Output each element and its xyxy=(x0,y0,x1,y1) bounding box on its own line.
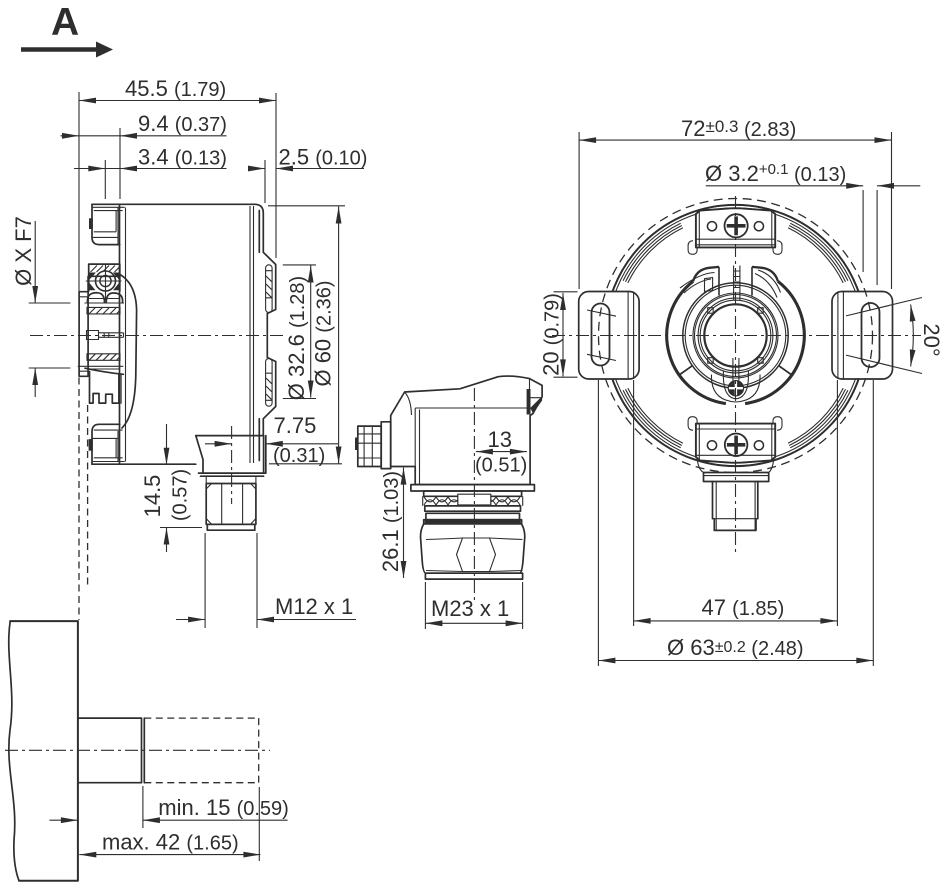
svg-text:7.75: 7.75 xyxy=(274,413,317,438)
svg-text:3.4 (0.13): 3.4 (0.13) xyxy=(138,145,227,170)
svg-text:M12 x 1: M12 x 1 xyxy=(275,594,353,619)
svg-text:(0.51): (0.51) xyxy=(475,455,527,477)
svg-text:26.1 (1.03): 26.1 (1.03) xyxy=(378,471,403,572)
svg-text:47 (1.85): 47 (1.85) xyxy=(702,595,785,620)
svg-text:M23 x 1: M23 x 1 xyxy=(431,596,509,621)
svg-text:Ø 63±0.2 (2.48): Ø 63±0.2 (2.48) xyxy=(667,635,804,660)
svg-text:20 (0.79): 20 (0.79) xyxy=(539,293,564,376)
svg-text:72±0.3 (2.83): 72±0.3 (2.83) xyxy=(681,116,796,141)
svg-text:14.5: 14.5 xyxy=(140,475,165,518)
svg-text:(0.57): (0.57) xyxy=(170,469,192,521)
svg-text:A: A xyxy=(51,1,79,44)
svg-text:Ø X F7: Ø X F7 xyxy=(11,216,36,286)
svg-text:45.5 (1.79): 45.5 (1.79) xyxy=(125,76,226,101)
svg-text:min. 15 (0.59): min. 15 (0.59) xyxy=(158,795,289,820)
svg-text:max. 42 (1.65): max. 42 (1.65) xyxy=(102,830,239,855)
svg-text:2.5 (0.10): 2.5 (0.10) xyxy=(279,145,368,170)
svg-text:13: 13 xyxy=(488,427,512,452)
svg-text:Ø 32.6 (1.28): Ø 32.6 (1.28) xyxy=(284,276,309,400)
svg-text:Ø 3.2+0.1 (0.13): Ø 3.2+0.1 (0.13) xyxy=(705,161,846,186)
svg-text:20°: 20° xyxy=(919,323,940,356)
svg-text:9.4 (0.37): 9.4 (0.37) xyxy=(138,111,227,136)
svg-text:(0.31): (0.31) xyxy=(273,445,325,467)
svg-text:Ø 60 (2.36): Ø 60 (2.36) xyxy=(311,280,336,386)
